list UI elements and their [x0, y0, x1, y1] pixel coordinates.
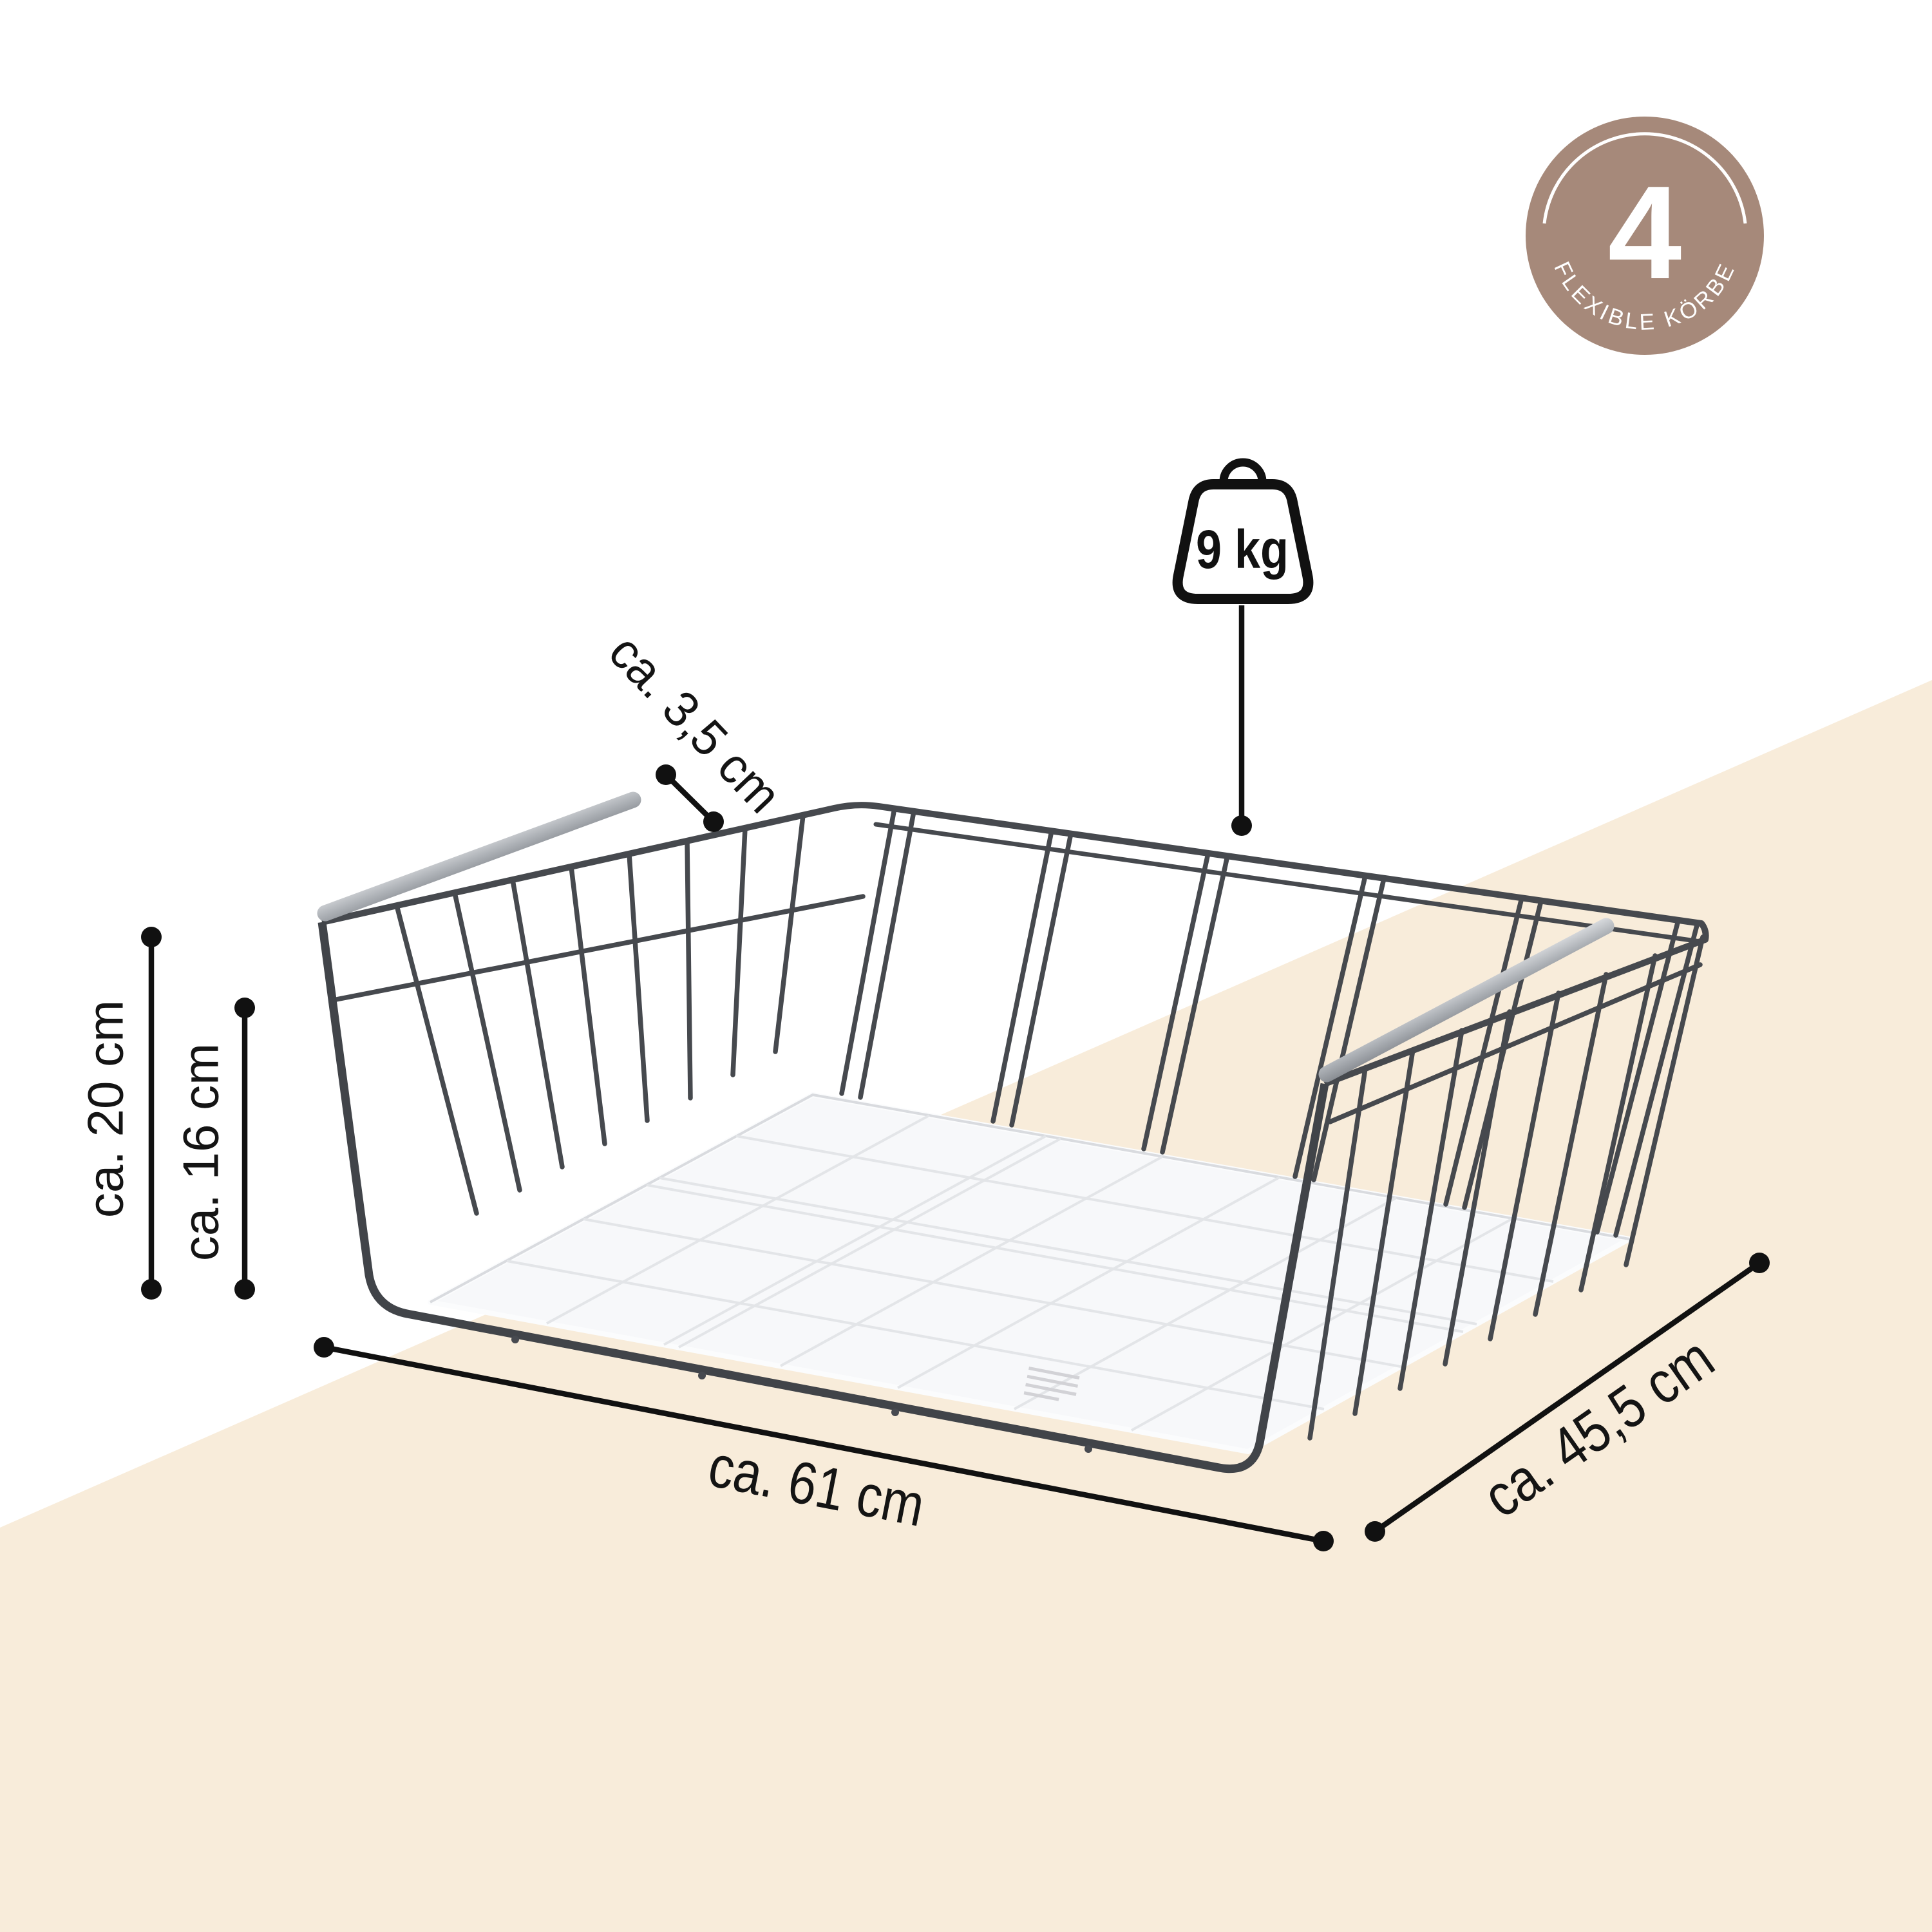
svg-text:ca. 20 cm: ca. 20 cm	[77, 1000, 134, 1218]
svg-text:4: 4	[1608, 158, 1682, 307]
svg-text:ca. 16 cm: ca. 16 cm	[173, 1043, 229, 1261]
svg-text:9 kg: 9 kg	[1196, 519, 1289, 580]
